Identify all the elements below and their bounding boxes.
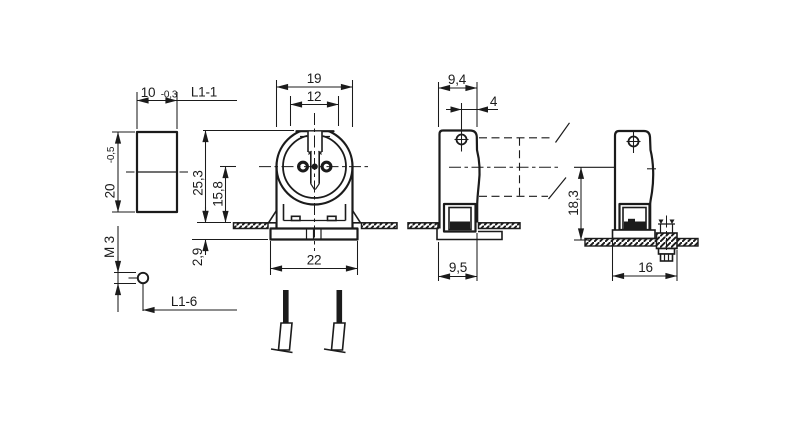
drawing-page: 10 -0,3 L1-1 20 -0,5 M 3 L1-6 [0,0,800,429]
dim-19-value: 19 [307,71,322,86]
dim-width-tolerance: -0,3 [161,90,178,101]
contact-block-mounted [620,204,650,230]
dim-axis-height-18-3: 18,3 [566,167,614,240]
thread-size-label: M 3 [102,236,117,258]
dim-hole-offset-4: 4 [446,94,498,130]
mounting-plate-mounted [585,239,698,247]
plate-section-right [479,223,521,229]
dim-16-value: 16 [638,260,653,275]
dim-4-value: 4 [490,94,498,109]
dim-body-depth-9-4: 9,4 [439,72,478,127]
mounted-side-view: 18,3 16 [566,131,698,282]
length-ref-top-label: L1-1 [191,85,217,100]
length-ref-bottom-label: L1-6 [171,294,197,309]
break-line-top [556,123,570,143]
dim-15-8-value: 15,8 [211,181,226,206]
wire-terminal-right [324,290,346,353]
dim-width-10: 10 -0,3 L1-1 [137,85,237,130]
dim-l1-6: L1-6 [143,294,237,310]
snap-hook-left [269,211,277,223]
m3-hole-circle [138,273,148,283]
mounted-foot-flange [613,230,656,239]
dim-snap-depth-2-9: 2,9 [190,207,268,266]
technical-drawing-canvas: 10 -0,3 L1-1 20 -0,5 M 3 L1-6 [0,0,800,429]
dim-22-value: 22 [307,253,322,268]
wire-terminal-left [271,290,293,353]
dim-9-5-value: 9,5 [449,260,467,275]
dim-axis-height-15-8: 15,8 [211,167,237,223]
side-view: 9,4 4 9,5 [408,72,570,281]
dim-width-value: 10 [141,85,156,100]
plate-section-left [408,223,438,229]
dim-height-tolerance: -0,5 [106,146,117,163]
dim-25-3-value: 25,3 [191,170,206,195]
dim-18-3-value: 18,3 [566,190,581,215]
thread-hole-m3: M 3 [102,226,148,312]
dim-12-value: 12 [307,89,322,104]
dim-height-value: 20 [103,184,118,199]
snap-hook-right [353,211,361,223]
dim-2-9-value: 2,9 [190,248,205,266]
contact-block [444,204,476,232]
dim-9-4-value: 9,4 [448,72,467,87]
dim-base-width-22: 22 [271,241,358,275]
break-line-bottom [549,178,567,200]
fixing-bolt-m3 [657,216,678,262]
